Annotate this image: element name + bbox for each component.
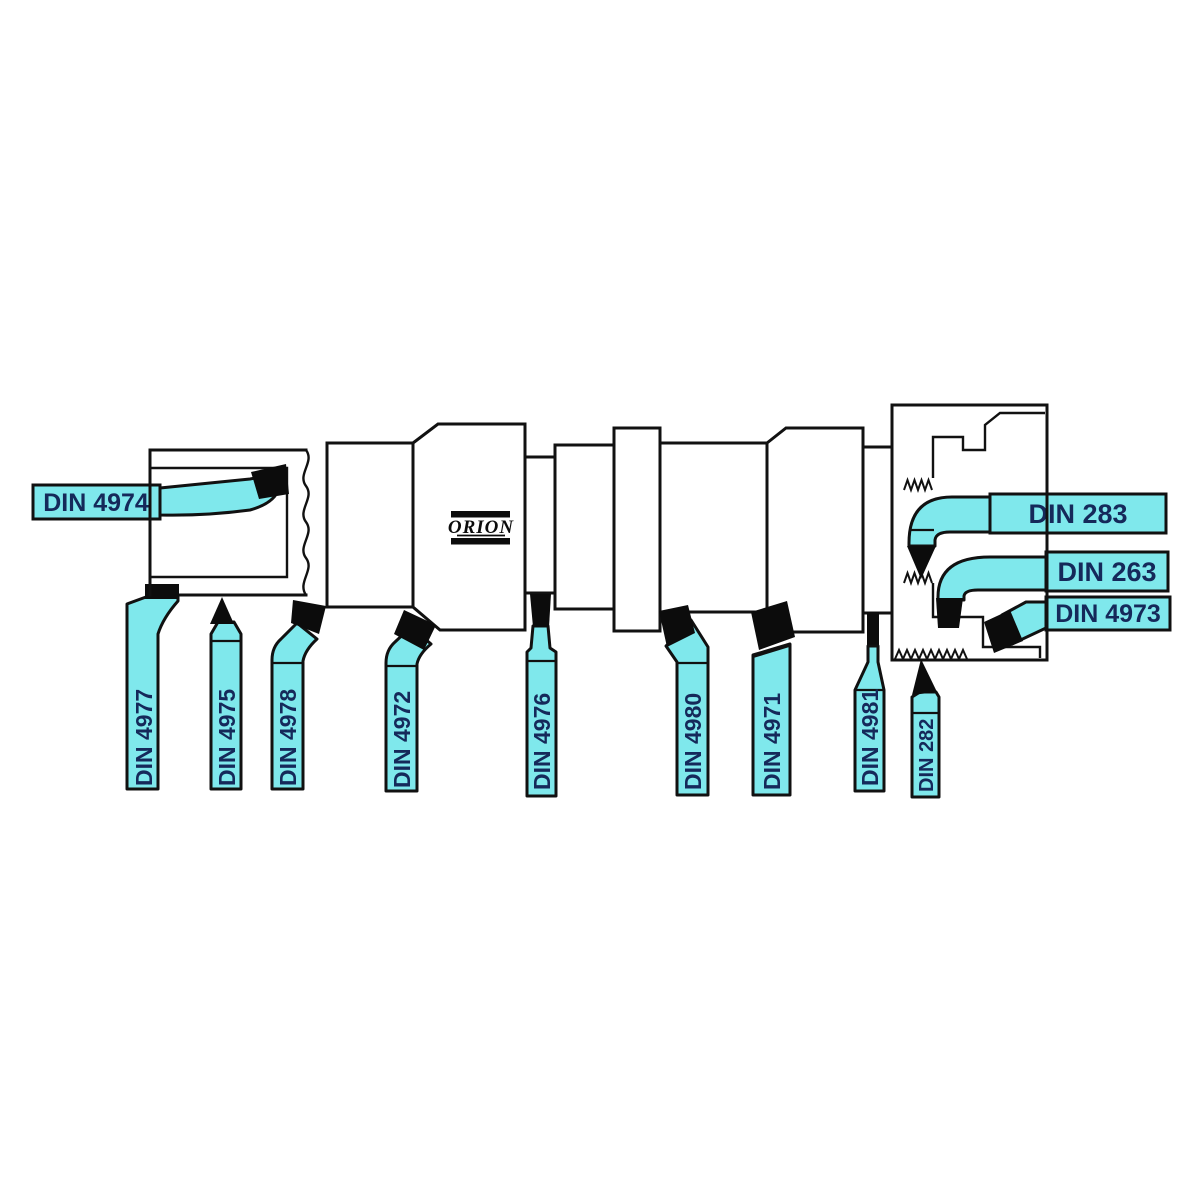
tool-label: DIN 4972 xyxy=(389,691,415,788)
tool-tip xyxy=(867,612,879,646)
tool-din-4981: DIN 4981 xyxy=(855,612,884,791)
workpiece-section xyxy=(660,443,767,612)
tool-din-4974: DIN 4974 xyxy=(33,464,289,519)
tool-diagram-page: DIN 4977 DIN 4975 DIN 4978 DIN 4972 DIN … xyxy=(0,0,1200,1200)
break-line xyxy=(303,450,308,595)
logo-bottom-bar xyxy=(451,538,510,545)
tool-label: DIN 4976 xyxy=(529,693,555,790)
tool-din-4971: DIN 4971 xyxy=(751,601,795,795)
external-thread-marks xyxy=(895,650,967,659)
tool-tip xyxy=(912,659,937,695)
tool-din-4978: DIN 4978 xyxy=(272,600,326,789)
tool-tip xyxy=(907,546,936,579)
tool-din-4973: DIN 4973 xyxy=(984,597,1170,653)
tool-label: DIN 4978 xyxy=(275,689,301,786)
tool-shank xyxy=(938,557,1046,600)
tool-din-4972: DIN 4972 xyxy=(386,610,436,791)
tool-tip xyxy=(530,594,551,627)
workpiece-section xyxy=(555,445,614,609)
tool-label: DIN 282 xyxy=(916,719,938,792)
brand-logo: ORION xyxy=(448,511,515,545)
tool-shank xyxy=(909,497,992,546)
internal-thread-marks xyxy=(904,480,932,490)
workpiece-section xyxy=(327,443,413,607)
internal-thread-marks xyxy=(904,573,932,583)
chuck-inner-top-contour xyxy=(933,413,1045,478)
tool-din-282: DIN 282 xyxy=(912,659,939,797)
tool-tip xyxy=(210,597,234,624)
workpiece-flange xyxy=(767,428,863,632)
tool-din-4977: DIN 4977 xyxy=(127,584,179,789)
tool-tip xyxy=(936,598,963,628)
tool-label: DIN 4974 xyxy=(43,489,149,517)
tool-label: DIN 4975 xyxy=(214,689,240,786)
tool-label: DIN 4973 xyxy=(1055,600,1161,628)
tool-din-4976: DIN 4976 xyxy=(527,594,556,796)
tool-label: DIN 4971 xyxy=(759,693,785,790)
tool-din-4975: DIN 4975 xyxy=(210,597,241,789)
workpiece-groove-neck xyxy=(525,457,555,593)
tool-tip xyxy=(751,601,795,650)
tool-label: DIN 4980 xyxy=(680,693,706,790)
tool-din-4980: DIN 4980 xyxy=(659,605,708,795)
tool-label: DIN 4981 xyxy=(857,689,883,786)
tool-label: DIN 283 xyxy=(1028,499,1127,529)
lathe-tools-diagram: DIN 4977 DIN 4975 DIN 4978 DIN 4972 DIN … xyxy=(0,0,1200,1200)
tool-label: DIN 4977 xyxy=(131,689,157,786)
tool-label: DIN 263 xyxy=(1057,557,1156,587)
workpiece-flange xyxy=(614,428,660,631)
workpiece-groove-neck xyxy=(863,447,892,613)
